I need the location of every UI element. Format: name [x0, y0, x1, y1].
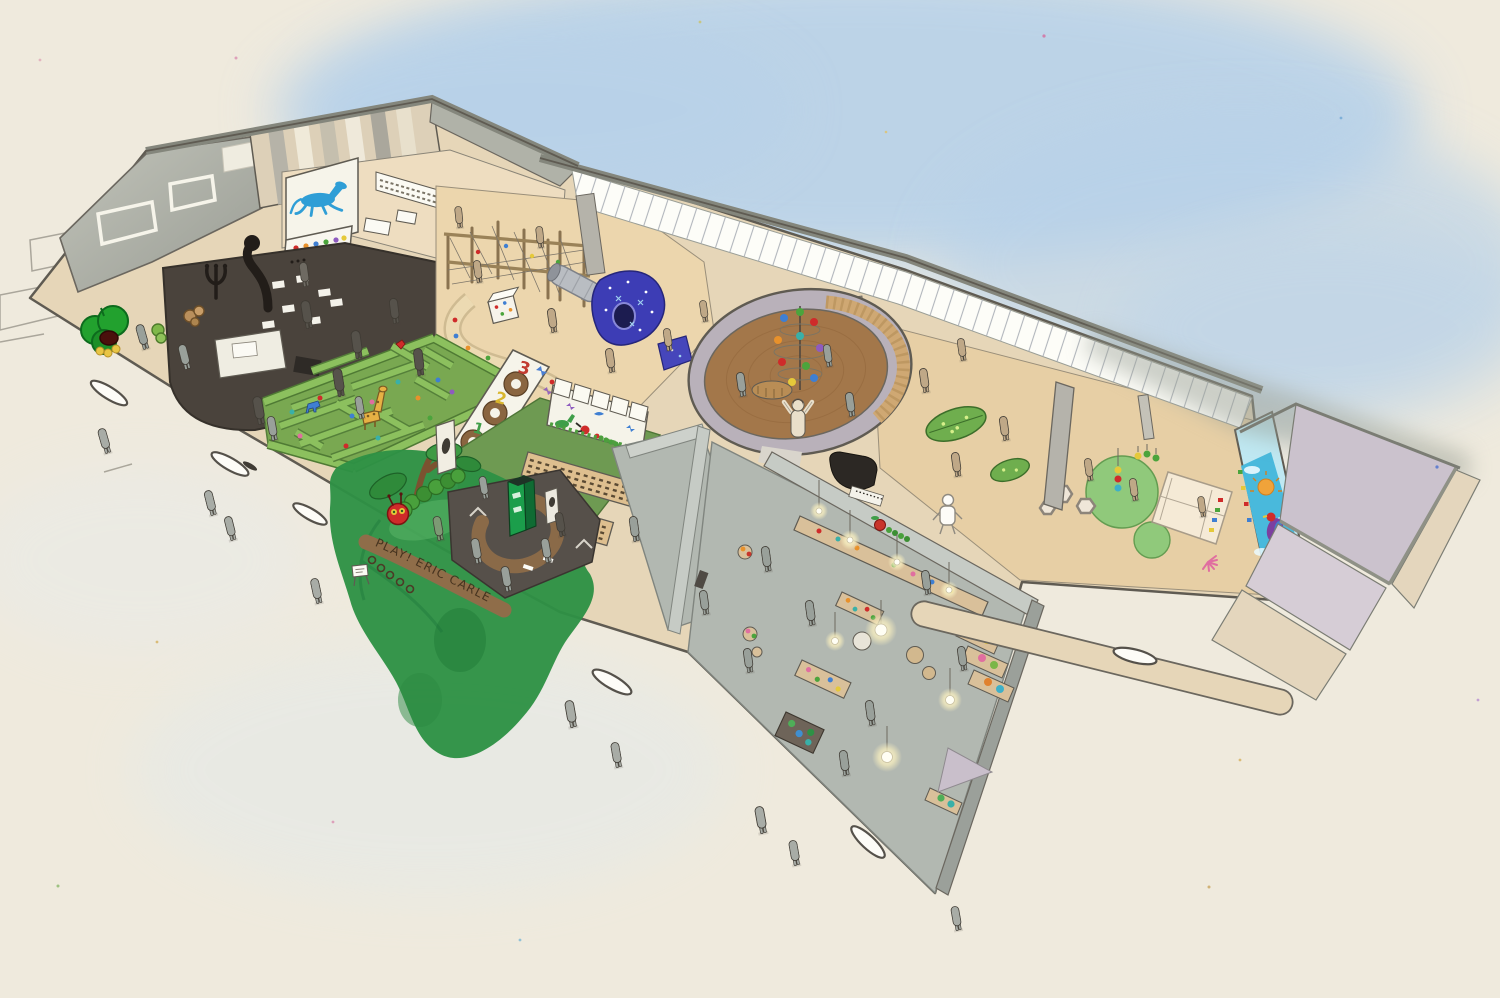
- info-kiosk: [508, 476, 536, 536]
- entry-pillar: [436, 420, 456, 474]
- concept-illustration-page: 3 2 1: [0, 0, 1500, 998]
- museum-cutaway-illustration: 3 2 1: [0, 0, 1500, 998]
